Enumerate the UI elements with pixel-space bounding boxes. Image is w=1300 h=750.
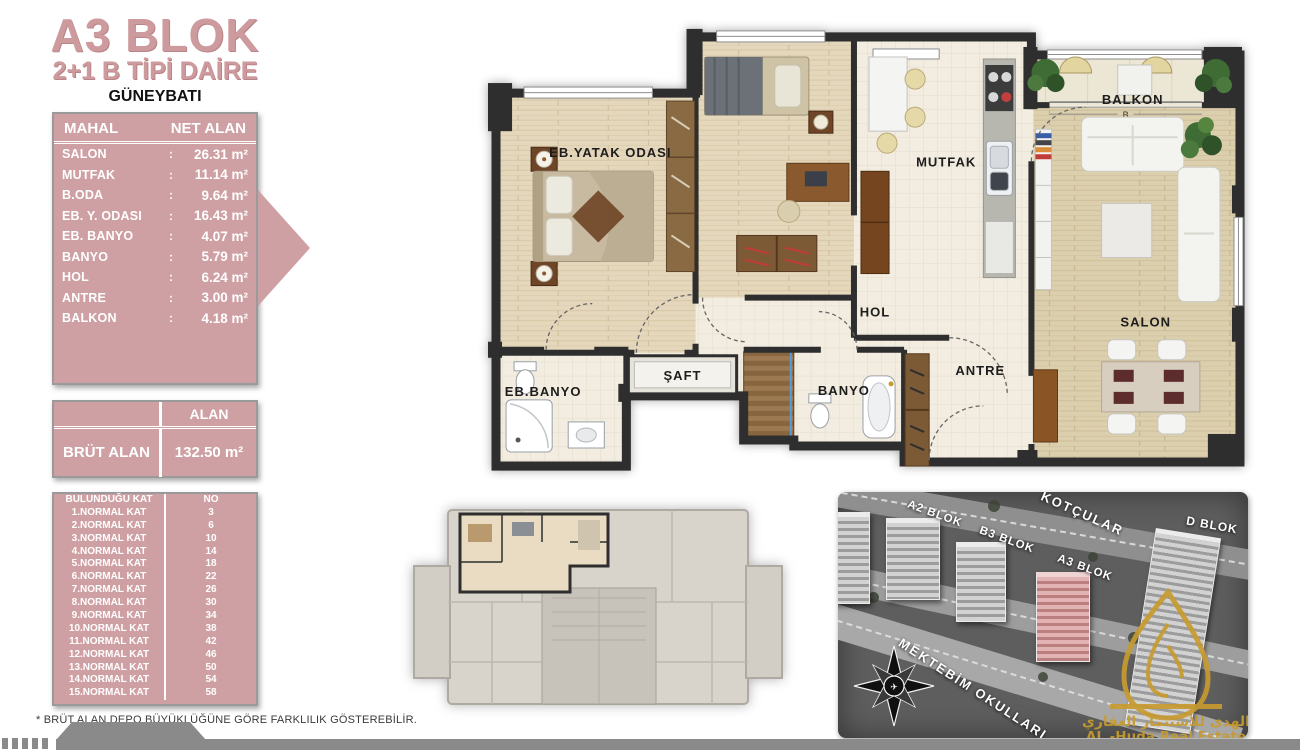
colon: : [166, 147, 176, 161]
net-table-col1: MAHAL [64, 120, 118, 137]
room-name: SALON [62, 147, 166, 161]
gross-area-table: ALAN BRÜT ALAN 132.50 m² [52, 400, 258, 478]
tower-b3 [956, 542, 1006, 622]
tick-mark [42, 738, 48, 749]
table-row: 15.NORMAL KAT58 [54, 687, 256, 700]
bottom-trapezoid [56, 722, 206, 740]
key-plan [402, 502, 822, 710]
room-label-antre: ANTRE [955, 363, 1005, 378]
stairs [744, 352, 794, 440]
table-row: 5.NORMAL KAT18 [54, 558, 256, 571]
table-row: 1.NORMAL KAT3 [54, 507, 256, 520]
tower-far-left [838, 512, 870, 604]
table-row: B.ODA:9.64 m² [54, 185, 256, 206]
table-row: BANYO:5.79 m² [54, 247, 256, 268]
room-label-banyo: BANYO [818, 383, 870, 398]
table-row: 8.NORMAL KAT30 [54, 597, 256, 610]
block-title: A3 BLOK [30, 12, 280, 58]
title-block: A3 BLOK 2+1 B TİPİ DAİRE GÜNEYBATI [30, 12, 280, 106]
table-row: 6.NORMAL KAT22 [54, 571, 256, 584]
colon: : [166, 229, 176, 243]
floor-table-header: BULUNDUĞU KATNO [54, 494, 256, 507]
floor-table: BULUNDUĞU KATNO 1.NORMAL KAT3 2.NORMAL K… [52, 492, 258, 706]
gross-area-label: BRÜT ALAN [54, 429, 162, 477]
table-row: EB. BANYO:4.07 m² [54, 226, 256, 247]
room-label-eb-banyo: EB.BANYO [505, 384, 582, 399]
bottom-bar [56, 739, 1300, 750]
shaft-box: ŞAFT [628, 356, 736, 394]
room-area: 6.24 m² [176, 270, 248, 285]
table-row: BALKON:4.18 m² [54, 308, 256, 329]
no-col-header: NO [166, 494, 256, 507]
room-name: ANTRE [62, 291, 166, 305]
room-label-mutfak: MUTFAK [916, 154, 976, 169]
room-label-eb-yatak: EB.YATAK ODASI [549, 145, 671, 160]
room-label-saft: ŞAFT [664, 368, 702, 383]
net-table-col2: NET ALAN [171, 120, 246, 137]
tick-mark [32, 738, 38, 749]
table-row: 14.NORMAL KAT54 [54, 674, 256, 687]
table-row: 12.NORMAL KAT46 [54, 649, 256, 662]
logo-latin-text: AL -Huda Real Estate [1086, 729, 1246, 738]
room-name: EB. Y. ODASI [62, 209, 166, 223]
company-logo: الهدى للاستثمار العقاري AL -Huda Real Es… [1080, 586, 1248, 738]
hall-shoe-cabinet [905, 354, 929, 466]
room-name: B.ODA [62, 188, 166, 202]
colon: : [166, 311, 176, 325]
table-row: 11.NORMAL KAT42 [54, 636, 256, 649]
table-row: 10.NORMAL KAT38 [54, 623, 256, 636]
colon: : [166, 209, 176, 223]
table-row: HOL:6.24 m² [54, 267, 256, 288]
tower-a2 [886, 518, 940, 600]
colon: : [166, 188, 176, 202]
table-row: ANTRE:3.00 m² [54, 288, 256, 309]
room-label-balkon: BALKON [1102, 92, 1164, 107]
tick-mark [12, 738, 18, 749]
room-name: BANYO [62, 250, 166, 264]
colon: : [166, 250, 176, 264]
room-area: 11.14 m² [176, 167, 248, 182]
table-arrow [258, 190, 310, 306]
room-area: 26.31 m² [176, 147, 248, 162]
room-label-hol: HOL [860, 305, 890, 320]
orientation-label: GÜNEYBATI [30, 88, 280, 106]
room-label-salon: SALON [1120, 315, 1171, 330]
table-row: 3.NORMAL KAT10 [54, 533, 256, 546]
empty-header-cell [54, 402, 162, 426]
brochure-page: A3 BLOK 2+1 B TİPİ DAİRE GÜNEYBATI MAHAL… [0, 0, 1300, 750]
table-row: MUTFAK:11.14 m² [54, 165, 256, 186]
room-area: 9.64 m² [176, 188, 248, 203]
table-row: SALON:26.31 m² [54, 144, 256, 165]
svg-text:✈: ✈ [890, 682, 898, 692]
gross-area-value: 132.50 m² [162, 429, 256, 477]
tick-mark [22, 738, 28, 749]
room-name: HOL [62, 270, 166, 284]
colon: : [166, 168, 176, 182]
colon: : [166, 270, 176, 284]
net-area-table: MAHAL NET ALAN SALON:26.31 m² MUTFAK:11.… [52, 112, 258, 385]
table-row: EB. Y. ODASI:16.43 m² [54, 206, 256, 227]
compass-icon: ✈ [852, 644, 936, 728]
room-area: 16.43 m² [176, 208, 248, 223]
tick-mark [2, 738, 8, 749]
room-area: 3.00 m² [176, 290, 248, 305]
table-row: 7.NORMAL KAT26 [54, 584, 256, 597]
table-row: 2.NORMAL KAT6 [54, 520, 256, 533]
room-name: BALKON [62, 311, 166, 325]
floor-col-header: BULUNDUĞU KAT [54, 494, 166, 507]
room-name: MUTFAK [62, 168, 166, 182]
floor-plate [414, 510, 782, 704]
table-row: 9.NORMAL KAT34 [54, 610, 256, 623]
room-area: 5.79 m² [176, 249, 248, 264]
colon: : [166, 291, 176, 305]
floor-plan: B [488, 24, 1250, 482]
alan-header: ALAN [162, 402, 256, 426]
site-map: A2 BLOK B3 BLOK A3 BLOK D BLOK KOTÇULAR … [838, 492, 1248, 738]
table-row: 13.NORMAL KAT50 [54, 662, 256, 675]
room-area: 4.07 m² [176, 229, 248, 244]
unit-type-title: 2+1 B TİPİ DAİRE [30, 58, 280, 84]
room-area: 4.18 m² [176, 311, 248, 326]
apartment-plan: B [488, 29, 1243, 466]
table-row: 4.NORMAL KAT14 [54, 546, 256, 559]
room-name: EB. BANYO [62, 229, 166, 243]
